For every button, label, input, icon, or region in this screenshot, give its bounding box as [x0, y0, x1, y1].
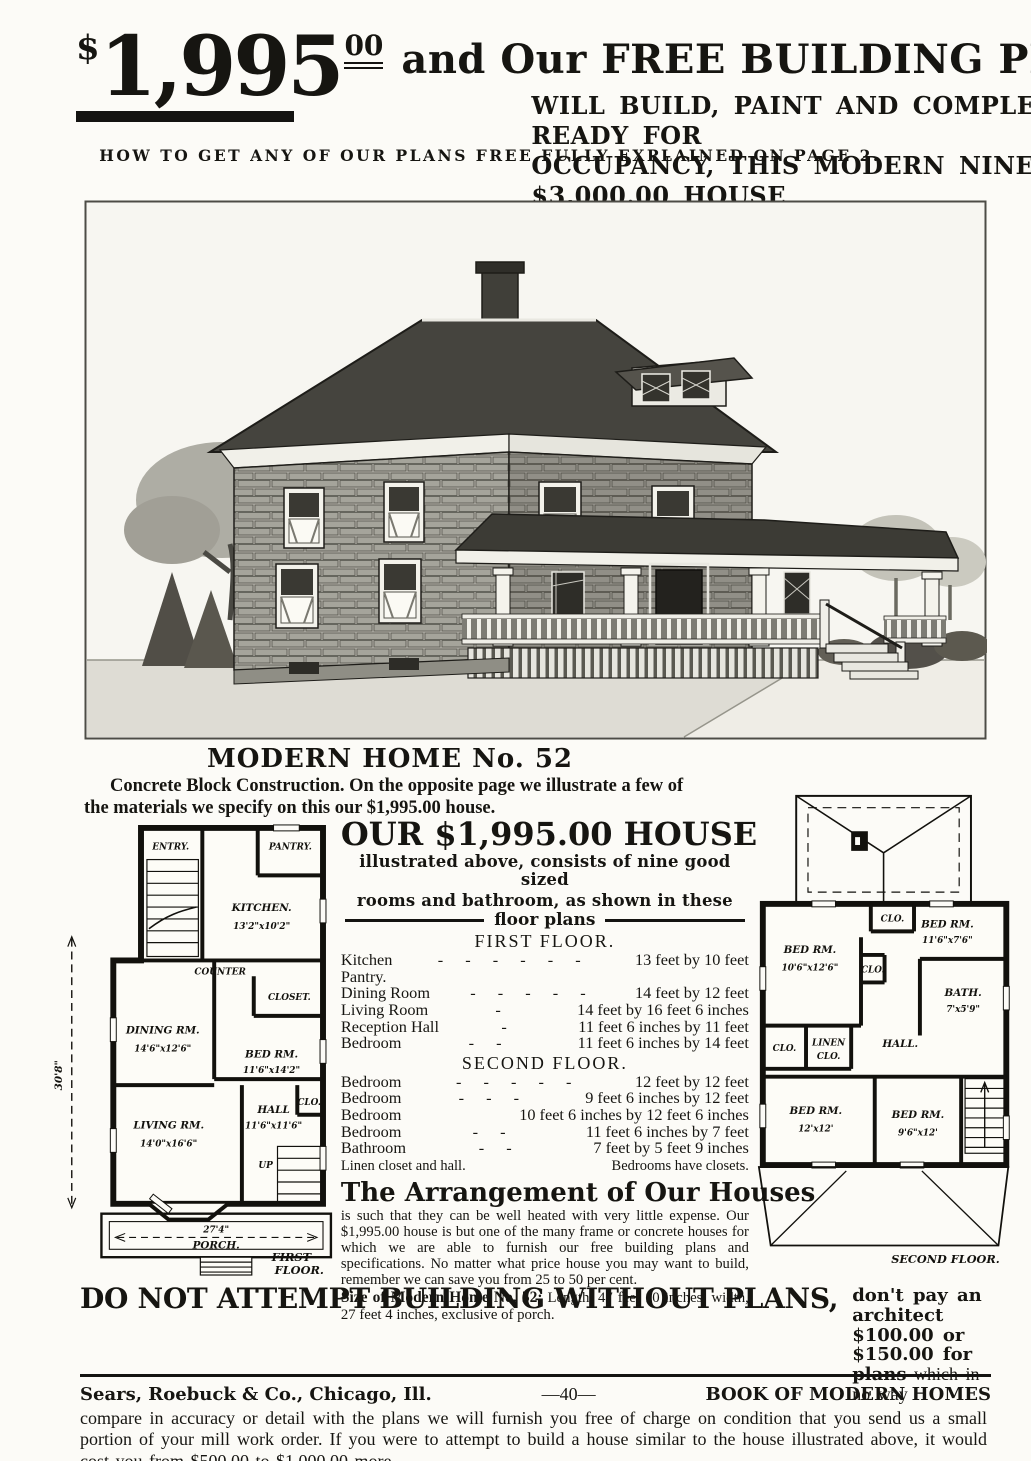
- second-floor-plan: CLO. BED RM. 11'6"x7'6" BED RM. 10'6"x12…: [753, 790, 1016, 1271]
- plan-label: 14'0"x16'6": [140, 1139, 197, 1149]
- offer-heading: OUR $1,995.00 HOUSE: [341, 818, 749, 850]
- roof-plan: [796, 796, 971, 904]
- warning-heading: DO NOT ATTEMPT BUILDING WITHOUT PLANS,: [80, 1284, 838, 1313]
- plan-label: COUNTER: [194, 967, 245, 977]
- aside-bold1: don't pay an architect $100.00 or: [852, 1285, 982, 1346]
- first-floor-plan: 30'8": [50, 790, 335, 1277]
- house-illustration: [84, 200, 987, 740]
- plan-label: 13'2"x10'2": [233, 922, 290, 932]
- headline: and Our FREE BUILDING PLANS: [401, 36, 1031, 83]
- note-left: Linen closet and hall.: [341, 1159, 466, 1174]
- footer-publisher: Sears, Roebuck & Co., Chicago, Ill.: [80, 1384, 432, 1405]
- plan-label: 11'6"x7'6": [922, 936, 973, 946]
- plan-label: CLO.: [297, 1098, 321, 1108]
- offer-subline1: illustrated above, consists of nine good…: [341, 853, 749, 889]
- catalog-page: $1,99500 and Our FREE BUILDING PLANS WIL…: [0, 0, 1031, 1461]
- plan-label: PANTRY.: [268, 843, 312, 853]
- arrangement-heading: The Arrangement of Our Houses: [341, 1180, 749, 1207]
- plan-label: BED RM.: [788, 1105, 842, 1117]
- warning-body: compare in accuracy or detail with the p…: [80, 1408, 987, 1461]
- plans-free-note: HOW TO GET ANY OF OUR PLANS FREE FULLY E…: [40, 146, 940, 165]
- subheadline-line1: WILL BUILD, PAINT AND COMPLETE, READY FO…: [531, 91, 1031, 151]
- plan-label: BED RM.: [783, 944, 837, 956]
- porch-lattice: [468, 648, 818, 678]
- plan-label: CLO.: [881, 915, 904, 925]
- plan-label: 27'4": [202, 1225, 229, 1235]
- second-floor-heading: SECOND FLOOR.: [341, 1054, 749, 1074]
- page-header: $1,99500 and Our FREE BUILDING PLANS WIL…: [76, 28, 993, 211]
- plan-label: CLO.: [773, 1044, 796, 1054]
- plan-label: BED RM.: [244, 1048, 298, 1060]
- offer-column: OUR $1,995.00 HOUSE illustrated above, c…: [335, 790, 753, 1323]
- modern-home-heading: MODERN HOME No. 52: [0, 744, 780, 774]
- plan-label: 10'6"x12'6": [781, 964, 838, 974]
- plan-label: CLO.: [861, 966, 884, 976]
- price-cents: 00: [344, 29, 383, 69]
- plan-label: 9'6"x12': [898, 1129, 938, 1139]
- plan-label: CLO.: [817, 1052, 840, 1062]
- price-amount: 1,995: [100, 19, 342, 115]
- plan-label: HALL: [256, 1104, 289, 1116]
- plan-label: 12'x12': [798, 1125, 833, 1135]
- arrangement-body: is such that they can be well heated wit…: [341, 1208, 749, 1288]
- plan-label: BATH.: [943, 987, 981, 999]
- plan-dim-label: 30'8": [53, 1060, 65, 1090]
- first-floor-plan-svg: 30'8": [50, 820, 335, 1277]
- plan-label: HALL.: [881, 1038, 918, 1050]
- steps: [200, 1257, 251, 1275]
- room-row: Bedroom - - 11 feet 6 inches by 14 feet: [341, 1035, 749, 1052]
- porch-roof-plan: [759, 1167, 1008, 1246]
- rule-line: [345, 919, 484, 922]
- plan-label: 11'6"x11'6": [245, 1122, 302, 1132]
- plan-caption: FLOOR.: [274, 1263, 324, 1277]
- plan-label: KITCHEN.: [231, 902, 292, 914]
- warning-section: DO NOT ATTEMPT BUILDING WITHOUT PLANS, d…: [80, 1284, 987, 1461]
- floor-plans-rule: floor plans: [345, 910, 745, 930]
- plan-caption: SECOND FLOOR.: [891, 1252, 1000, 1266]
- plan-label: ENTRY.: [151, 843, 189, 853]
- dimension-line: [68, 937, 76, 1208]
- price-dollar-sign: $: [76, 28, 100, 68]
- plan-label: BED RM.: [891, 1109, 945, 1121]
- footer-page-number: —40—: [542, 1384, 596, 1405]
- room-row: Bathroom - - 7 feet by 5 feet 9 inches: [341, 1140, 749, 1157]
- plan-label: DINING RM.: [125, 1025, 200, 1037]
- second-floor-plan-svg: CLO. BED RM. 11'6"x7'6" BED RM. 10'6"x12…: [753, 790, 1016, 1271]
- window-icon: [784, 572, 810, 614]
- plan-label: LIVING RM.: [132, 1120, 204, 1132]
- plan-label: 14'6"x12'6": [134, 1044, 191, 1054]
- plan-label: LINEN: [811, 1038, 846, 1048]
- closet-notes: Linen closet and hall. Bedrooms have clo…: [341, 1159, 749, 1174]
- plan-label: CLOSET.: [268, 993, 311, 1003]
- plan-label: UP: [258, 1161, 273, 1171]
- plan-label: PORCH.: [192, 1239, 240, 1251]
- offer-subline2: rooms and bathroom, as shown in these: [341, 892, 749, 910]
- plan-label: 11'6"x14'2": [243, 1066, 300, 1076]
- chimney-plan: [851, 831, 868, 851]
- plan-label: BED RM.: [920, 918, 974, 930]
- plan-label: 7'x5'9": [946, 1005, 980, 1015]
- house-illustration-svg: [84, 200, 987, 740]
- page-footer: Sears, Roebuck & Co., Chicago, Ill. —40—…: [80, 1374, 991, 1405]
- room-row: Kitchen - - - - - - 13 feet by 10 feet: [341, 952, 749, 969]
- rule-line: [605, 919, 744, 922]
- rule-label-text: floor plans: [494, 910, 595, 930]
- footer-book-title: BOOK OF MODERN HOMES: [706, 1384, 992, 1405]
- price-lockup: $1,99500: [76, 28, 383, 122]
- note-right: Bedrooms have closets.: [612, 1159, 749, 1174]
